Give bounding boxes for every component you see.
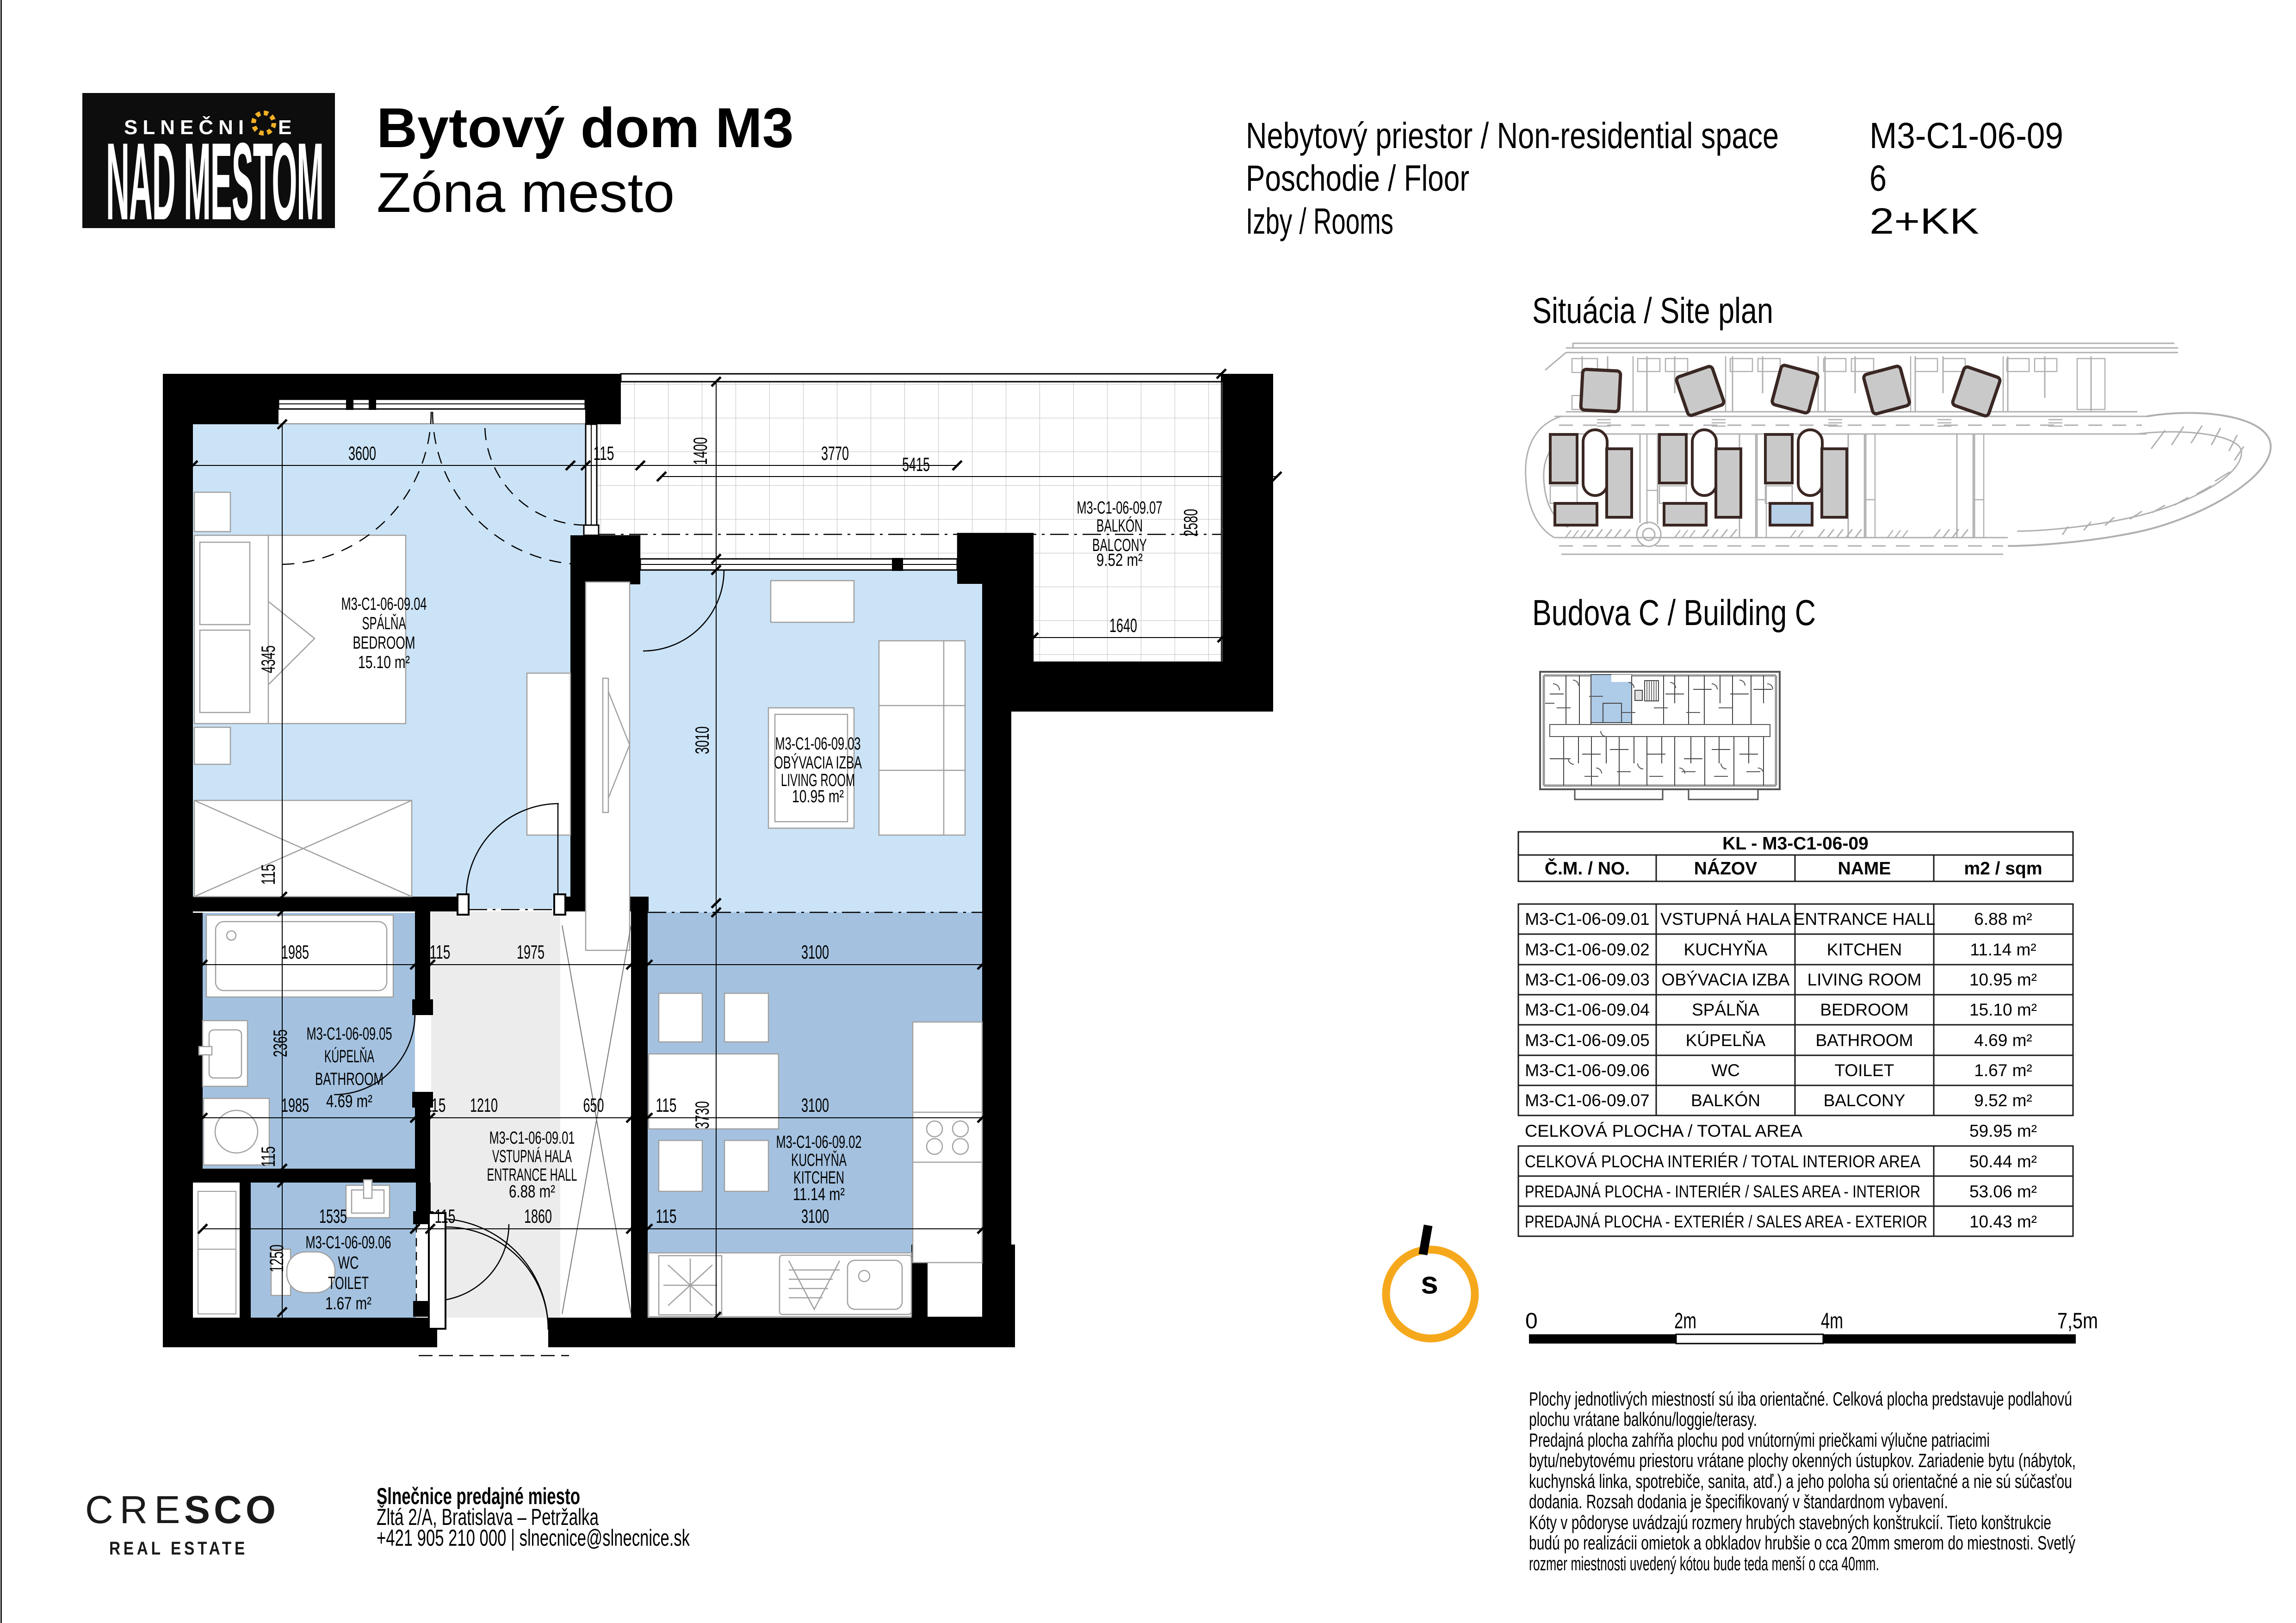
svg-text:Č.M. / NO.: Č.M. / NO. bbox=[1545, 858, 1630, 879]
svg-text:10.95 m²: 10.95 m² bbox=[792, 787, 844, 806]
svg-text:4.69 m²: 4.69 m² bbox=[326, 1092, 372, 1111]
svg-text:6.88 m²: 6.88 m² bbox=[1974, 910, 2032, 929]
svg-text:10.95 m²: 10.95 m² bbox=[1969, 970, 2037, 989]
svg-text:VSTUPNÁ HALA: VSTUPNÁ HALA bbox=[1660, 910, 1791, 929]
svg-text:M3-C1-06-09.05: M3-C1-06-09.05 bbox=[307, 1024, 392, 1044]
svg-text:SCO: SCO bbox=[184, 1488, 279, 1531]
svg-text:1975: 1975 bbox=[517, 941, 545, 963]
svg-text:Kóty v pôdoryse uvádzajú rozme: Kóty v pôdoryse uvádzajú rozmery hrubých… bbox=[1529, 1511, 2051, 1533]
svg-text:Poschodie / Floor: Poschodie / Floor bbox=[1246, 157, 1469, 198]
svg-text:BATHROOM: BATHROOM bbox=[1815, 1031, 1913, 1050]
svg-text:7,5m: 7,5m bbox=[2057, 1309, 2098, 1333]
svg-text:NAD MESTOM: NAD MESTOM bbox=[106, 120, 323, 243]
svg-text:BALCONY: BALCONY bbox=[1824, 1091, 1906, 1110]
svg-text:CRE: CRE bbox=[85, 1488, 186, 1531]
svg-text:kuchynská linka, spotrebiče, s: kuchynská linka, spotrebiče, sanita, atď… bbox=[1529, 1470, 2072, 1492]
svg-text:LIVING ROOM: LIVING ROOM bbox=[1807, 970, 1922, 989]
svg-text:m2 / sqm: m2 / sqm bbox=[1964, 859, 2042, 879]
svg-text:budú po realizácii omietok a o: budú po realizácii omietok a obkladov hr… bbox=[1529, 1532, 2075, 1554]
svg-text:KÚPELŇA: KÚPELŇA bbox=[1686, 1031, 1766, 1050]
svg-text:M3-C1-06-09.06: M3-C1-06-09.06 bbox=[1525, 1061, 1649, 1080]
svg-text:3600: 3600 bbox=[348, 442, 376, 464]
svg-text:KL - M3-C1-06-09: KL - M3-C1-06-09 bbox=[1722, 834, 1869, 854]
svg-text:1400: 1400 bbox=[689, 437, 711, 465]
svg-text:1640: 1640 bbox=[1109, 614, 1137, 636]
svg-text:WC: WC bbox=[1711, 1061, 1740, 1080]
svg-text:CELKOVÁ PLOCHA / TOTAL AREA: CELKOVÁ PLOCHA / TOTAL AREA bbox=[1525, 1121, 1802, 1140]
svg-text:4m: 4m bbox=[1821, 1309, 1843, 1333]
svg-text:3100: 3100 bbox=[801, 941, 829, 963]
svg-text:9.52 m²: 9.52 m² bbox=[1096, 551, 1143, 570]
svg-text:Izby / Rooms: Izby / Rooms bbox=[1246, 200, 1393, 242]
svg-text:3100: 3100 bbox=[801, 1205, 829, 1227]
svg-text:115: 115 bbox=[594, 442, 614, 464]
svg-text:Bytový dom M3: Bytový dom M3 bbox=[377, 96, 794, 159]
svg-text:BALKÓN: BALKÓN bbox=[1691, 1091, 1760, 1110]
svg-text:NÁZOV: NÁZOV bbox=[1694, 858, 1758, 879]
svg-text:3770: 3770 bbox=[821, 442, 849, 464]
svg-text:M3-C1-06-09.03: M3-C1-06-09.03 bbox=[1525, 970, 1649, 989]
svg-text:+421 905 210 000 | slnecnice@s: +421 905 210 000 | slnecnice@slnecnice.s… bbox=[377, 1525, 690, 1551]
svg-text:1985: 1985 bbox=[281, 941, 309, 963]
svg-text:Predajná plocha zahŕňa plochu: Predajná plocha zahŕňa plochu pod vnútor… bbox=[1529, 1429, 1990, 1451]
svg-text:PREDAJNÁ PLOCHA - INTERIÉR / S: PREDAJNÁ PLOCHA - INTERIÉR / SALES AREA … bbox=[1525, 1182, 1920, 1201]
svg-text:TOILET: TOILET bbox=[328, 1274, 369, 1293]
svg-text:Plochy jednotlivých miestností: Plochy jednotlivých miestností sú iba or… bbox=[1529, 1388, 2072, 1410]
svg-text:M3-C1-06-09.07: M3-C1-06-09.07 bbox=[1525, 1091, 1649, 1110]
svg-text:650: 650 bbox=[583, 1094, 604, 1116]
svg-text:3100: 3100 bbox=[801, 1094, 829, 1116]
svg-text:53.06 m²: 53.06 m² bbox=[1969, 1182, 2037, 1201]
svg-text:M3-C1-06-09.04: M3-C1-06-09.04 bbox=[1525, 1000, 1649, 1019]
svg-text:115: 115 bbox=[656, 1094, 677, 1116]
svg-text:1210: 1210 bbox=[470, 1094, 498, 1116]
svg-text:plochu vrátane balkónu/loggie/: plochu vrátane balkónu/loggie/terasy. bbox=[1529, 1408, 1757, 1430]
svg-text:ENTRANCE HALL: ENTRANCE HALL bbox=[1794, 910, 1935, 929]
svg-text:5415: 5415 bbox=[902, 453, 930, 475]
svg-text:OBÝVACIA IZBA: OBÝVACIA IZBA bbox=[774, 753, 862, 773]
svg-text:dodania. Rozsah dodania je špe: dodania. Rozsah dodania je špecifikovaný… bbox=[1529, 1491, 1948, 1512]
svg-text:BALKÓN: BALKÓN bbox=[1096, 516, 1143, 536]
svg-text:BATHROOM: BATHROOM bbox=[315, 1070, 384, 1089]
svg-text:M3-C1-06-09.03: M3-C1-06-09.03 bbox=[775, 734, 861, 754]
svg-text:1.67 m²: 1.67 m² bbox=[325, 1294, 371, 1313]
svg-text:KUCHYŇA: KUCHYŇA bbox=[1684, 940, 1768, 959]
svg-text:4.69 m²: 4.69 m² bbox=[1974, 1031, 2032, 1050]
svg-text:0: 0 bbox=[1525, 1309, 1538, 1333]
svg-text:115: 115 bbox=[257, 1146, 279, 1167]
svg-text:BEDROOM: BEDROOM bbox=[353, 633, 415, 653]
svg-text:M3-C1-06-09.01: M3-C1-06-09.01 bbox=[1525, 910, 1649, 929]
svg-text:1985: 1985 bbox=[281, 1094, 309, 1116]
svg-text:s: s bbox=[1421, 1265, 1438, 1301]
svg-text:SPÁLŇA: SPÁLŇA bbox=[362, 613, 406, 633]
svg-text:BEDROOM: BEDROOM bbox=[1820, 1000, 1908, 1019]
svg-text:Zóna mesto: Zóna mesto bbox=[377, 161, 675, 224]
svg-text:1.67 m²: 1.67 m² bbox=[1974, 1061, 2032, 1080]
svg-text:2m: 2m bbox=[1674, 1309, 1696, 1333]
svg-text:KÚPELŇA: KÚPELŇA bbox=[324, 1047, 374, 1066]
svg-text:REAL ESTATE: REAL ESTATE bbox=[109, 1538, 248, 1559]
svg-text:3010: 3010 bbox=[691, 726, 713, 754]
svg-text:PREDAJNÁ PLOCHA - EXTERIÉR / S: PREDAJNÁ PLOCHA - EXTERIÉR / SALES AREA … bbox=[1525, 1212, 1927, 1231]
svg-text:WC: WC bbox=[338, 1253, 359, 1273]
svg-text:VSTUPNÁ HALA: VSTUPNÁ HALA bbox=[492, 1146, 572, 1166]
svg-text:bytu/nebytovému priestoru vrát: bytu/nebytovému priestoru vrátane plochy… bbox=[1529, 1450, 2076, 1471]
svg-text:OBÝVACIA IZBA: OBÝVACIA IZBA bbox=[1662, 970, 1790, 989]
svg-text:6: 6 bbox=[1869, 157, 1887, 198]
svg-text:M3-C1-06-09.06: M3-C1-06-09.06 bbox=[306, 1233, 391, 1252]
svg-text:115: 115 bbox=[257, 864, 279, 885]
svg-text:TOILET: TOILET bbox=[1835, 1061, 1894, 1080]
svg-text:M3-C1-06-09.02: M3-C1-06-09.02 bbox=[776, 1133, 862, 1152]
svg-text:CELKOVÁ PLOCHA INTERIÉR / TOTA: CELKOVÁ PLOCHA INTERIÉR / TOTAL INTERIOR… bbox=[1525, 1152, 1920, 1171]
svg-text:1535: 1535 bbox=[319, 1205, 347, 1227]
svg-text:M3-C1-06-09: M3-C1-06-09 bbox=[1869, 115, 2063, 156]
svg-text:1250: 1250 bbox=[266, 1245, 287, 1272]
svg-text:115: 115 bbox=[430, 941, 451, 963]
svg-text:9.52 m²: 9.52 m² bbox=[1974, 1091, 2032, 1110]
svg-text:SPÁLŇA: SPÁLŇA bbox=[1692, 1000, 1759, 1019]
svg-text:NAME: NAME bbox=[1838, 859, 1891, 879]
svg-text:M3-C1-06-09.01: M3-C1-06-09.01 bbox=[489, 1128, 575, 1148]
svg-text:M3-C1-06-09.07: M3-C1-06-09.07 bbox=[1077, 498, 1163, 518]
svg-text:10.43 m²: 10.43 m² bbox=[1969, 1212, 2037, 1231]
svg-text:2+KK: 2+KK bbox=[1869, 200, 1979, 242]
svg-text:Nebytový priestor / Non-reside: Nebytový priestor / Non-residential spac… bbox=[1246, 115, 1779, 156]
svg-text:KUCHYŇA: KUCHYŇA bbox=[791, 1150, 847, 1170]
svg-text:rozmer miestnosti uvedený kóto: rozmer miestnosti uvedený kótou bude ted… bbox=[1529, 1553, 1879, 1574]
svg-text:15.10 m²: 15.10 m² bbox=[358, 653, 410, 672]
svg-text:4345: 4345 bbox=[257, 645, 279, 673]
svg-text:3730: 3730 bbox=[691, 1101, 713, 1129]
svg-text:Situácia / Site plan: Situácia / Site plan bbox=[1532, 290, 1773, 331]
svg-text:KITCHEN: KITCHEN bbox=[1827, 940, 1902, 959]
svg-text:11.14 m²: 11.14 m² bbox=[1970, 940, 2036, 959]
svg-text:115: 115 bbox=[435, 1205, 456, 1227]
svg-text:1860: 1860 bbox=[524, 1205, 552, 1227]
svg-text:M3-C1-06-09.04: M3-C1-06-09.04 bbox=[341, 595, 427, 614]
svg-text:59.95 m²: 59.95 m² bbox=[1969, 1121, 2037, 1140]
svg-text:6.88 m²: 6.88 m² bbox=[509, 1182, 555, 1202]
svg-text:2580: 2580 bbox=[1180, 509, 1201, 537]
svg-text:M3-C1-06-09.02: M3-C1-06-09.02 bbox=[1525, 940, 1649, 959]
svg-text:50.44 m²: 50.44 m² bbox=[1969, 1152, 2037, 1171]
svg-text:115: 115 bbox=[425, 1094, 446, 1116]
svg-text:Budova C / Building C: Budova C / Building C bbox=[1532, 592, 1816, 633]
svg-text:15.10 m²: 15.10 m² bbox=[1969, 1000, 2037, 1019]
svg-text:M3-C1-06-09.05: M3-C1-06-09.05 bbox=[1525, 1031, 1649, 1050]
svg-text:115: 115 bbox=[656, 1205, 677, 1227]
svg-text:11.14 m²: 11.14 m² bbox=[793, 1185, 845, 1204]
svg-text:2365: 2365 bbox=[269, 1029, 291, 1057]
